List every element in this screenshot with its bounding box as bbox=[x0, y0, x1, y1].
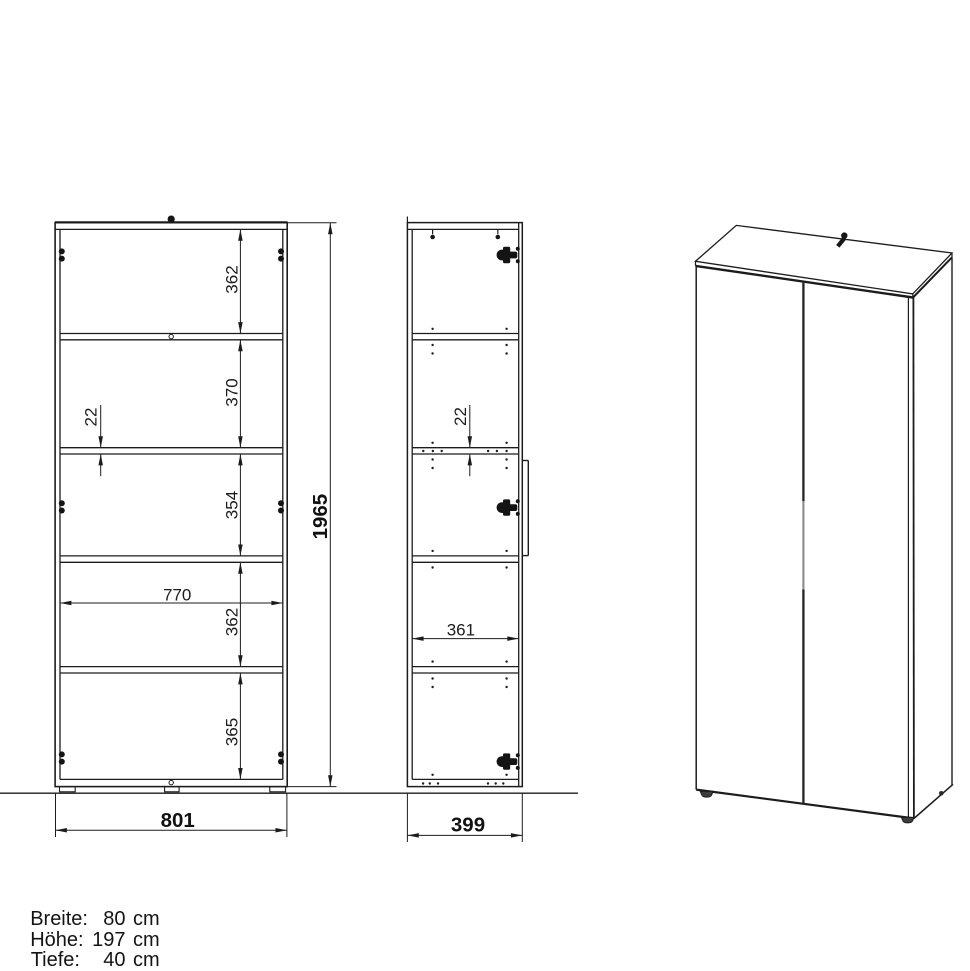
svg-text:801: 801 bbox=[161, 809, 195, 832]
svg-text:354: 354 bbox=[222, 491, 241, 519]
svg-text:361: 361 bbox=[447, 621, 475, 640]
svg-text:22: 22 bbox=[451, 407, 470, 426]
svg-text:365: 365 bbox=[222, 718, 241, 746]
svg-text:1965: 1965 bbox=[309, 494, 332, 540]
svg-text:362: 362 bbox=[222, 608, 241, 636]
svg-text:770: 770 bbox=[163, 585, 191, 604]
svg-text:399: 399 bbox=[451, 814, 485, 837]
svg-text:370: 370 bbox=[222, 378, 241, 406]
svg-text:22: 22 bbox=[82, 408, 101, 427]
svg-text:362: 362 bbox=[222, 265, 241, 293]
